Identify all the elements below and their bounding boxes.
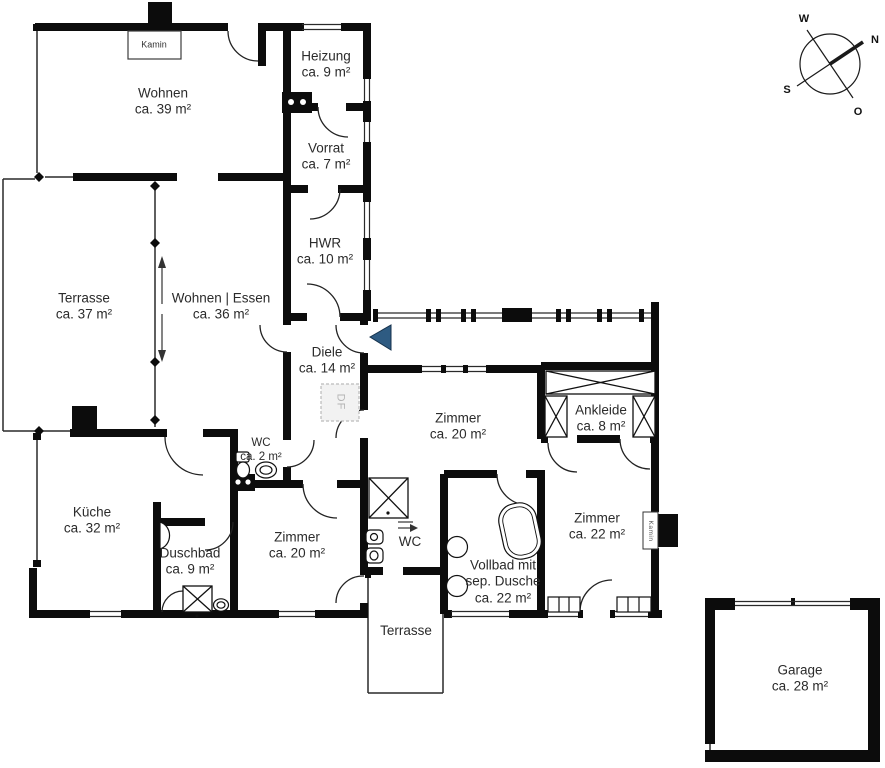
floor-plan: Wohnenca. 39 m² Heizungca. 9 m² Vorratca… bbox=[0, 0, 885, 768]
kamin-wall-label: Kamin bbox=[646, 521, 654, 542]
entry-arrow-icon bbox=[370, 325, 391, 350]
room-label-hwr: HWRca. 10 m² bbox=[297, 236, 353, 269]
floor-plan-drawing bbox=[0, 0, 885, 768]
compass-east: O bbox=[854, 106, 863, 118]
wardrobe-right bbox=[633, 396, 655, 437]
shower-wc bbox=[369, 478, 408, 518]
room-label-heizung: Heizungca. 9 m² bbox=[301, 49, 351, 82]
door-vorrat bbox=[318, 107, 348, 137]
door-vollbad bbox=[497, 474, 528, 505]
room-label-wc-klein: WCca. 2 m² bbox=[240, 436, 282, 464]
compass-icon bbox=[797, 30, 863, 98]
door-kueche bbox=[165, 437, 203, 475]
flue-box-1 bbox=[282, 92, 312, 113]
door-zimmer-unten bbox=[303, 484, 337, 518]
wc-arrow bbox=[398, 522, 418, 532]
kamin-right-block bbox=[658, 514, 678, 547]
room-label-ankleide: Ankleideca. 8 m² bbox=[575, 403, 627, 436]
room-label-garage: Garageca. 28 m² bbox=[772, 663, 828, 696]
kamin-box-label: Kamin bbox=[141, 40, 167, 51]
chimney-blocks bbox=[72, 2, 678, 547]
door-hwr-diele bbox=[307, 284, 340, 317]
fence-line bbox=[373, 308, 651, 322]
room-label-zimmer-mitte: Zimmerca. 20 m² bbox=[430, 411, 486, 444]
door-dusche-kabine bbox=[162, 591, 183, 612]
df-label: DF bbox=[333, 394, 346, 411]
compass-south: S bbox=[783, 84, 790, 96]
room-label-zimmer-unten: Zimmerca. 20 m² bbox=[269, 530, 325, 563]
compass-west: W bbox=[799, 13, 809, 25]
fence-block bbox=[502, 308, 532, 322]
door-zimmer-rechts bbox=[620, 439, 650, 469]
compass-north: N bbox=[871, 34, 879, 46]
room-label-terrasse-links: Terrasseca. 37 m² bbox=[56, 291, 112, 324]
room-label-vollbad: Vollbad mitsep. Duscheca. 22 m² bbox=[465, 557, 540, 606]
door-wohnen-essen bbox=[260, 325, 287, 352]
room-label-vorrat: Vorratca. 7 m² bbox=[302, 141, 351, 174]
room-label-wc-mitte: WC bbox=[399, 534, 422, 550]
chimney-middle bbox=[72, 406, 97, 431]
room-label-wohnen-essen: Wohnen | Essenca. 36 m² bbox=[172, 291, 271, 324]
door-ankleide bbox=[548, 443, 577, 472]
door-zimmer-rechts-terrasse bbox=[580, 580, 612, 612]
room-label-diele: Dieleca. 14 m² bbox=[299, 345, 355, 378]
room-label-duschbad: Duschbadca. 9 m² bbox=[160, 546, 221, 579]
room-label-zimmer-rechts: Zimmerca. 22 m² bbox=[569, 511, 625, 544]
door-hwr bbox=[310, 189, 340, 219]
room-label-wohnen: Wohnenca. 39 m² bbox=[135, 86, 191, 119]
radiators bbox=[548, 597, 651, 612]
basin-1 bbox=[447, 537, 468, 558]
sliding-arrows bbox=[158, 256, 166, 362]
basin-2 bbox=[447, 576, 468, 597]
room-label-terrasse-unten: Terrasse bbox=[380, 623, 432, 639]
toilet-wc-klein bbox=[237, 462, 250, 478]
wardrobe-top bbox=[546, 371, 655, 394]
room-label-kueche: Kücheca. 32 m² bbox=[64, 505, 120, 538]
door-zimmer-unten-terrasse bbox=[336, 576, 364, 603]
chimney-top bbox=[148, 2, 172, 24]
wardrobe-left bbox=[545, 396, 567, 437]
door-wohnen bbox=[228, 31, 258, 61]
door-wc-klein bbox=[287, 440, 314, 467]
